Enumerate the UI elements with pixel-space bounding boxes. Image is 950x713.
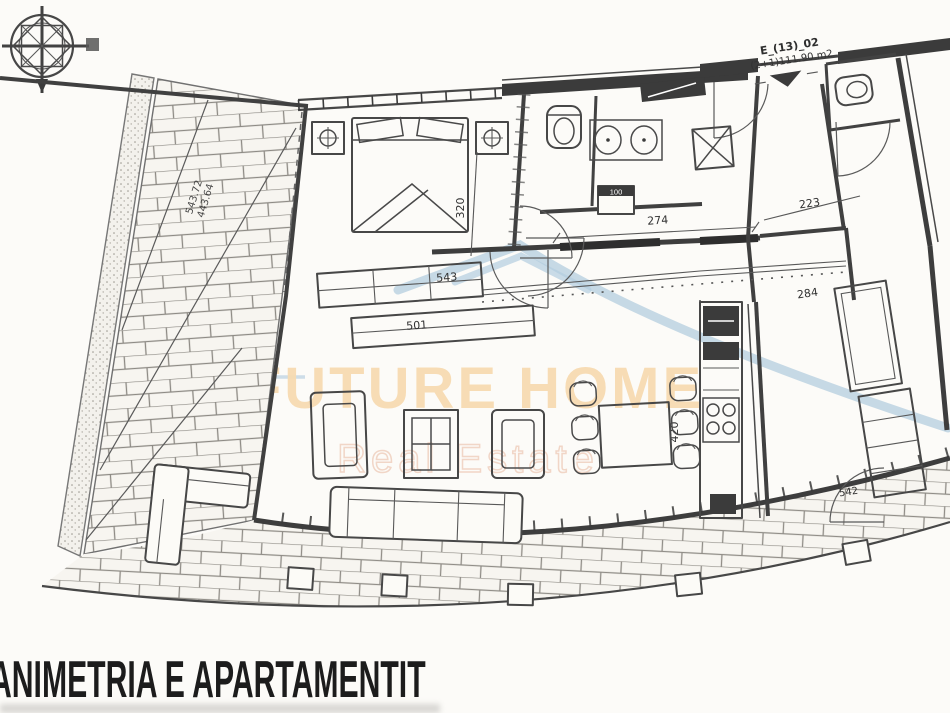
scan-artifact (0, 704, 440, 713)
toilet-icon (547, 106, 581, 148)
double-bed (352, 118, 468, 232)
wardrobe-501 (351, 305, 535, 348)
sofa-long (329, 487, 523, 544)
dim-wardrobe-top: 543 (436, 270, 458, 284)
washing-machine: 100 (598, 186, 634, 214)
tall-wardrobe-upper (834, 281, 902, 392)
dim-wardrobe-mid: 501 (406, 318, 428, 332)
double-sink (590, 120, 662, 160)
washer-label: 100 (610, 188, 623, 197)
floor-plan-drawing: 543.72 443.64 (0, 6, 950, 606)
dim-corridor: 274 (647, 213, 669, 227)
unit-label: E_(13)_02 (2+1)111.90 m2 (747, 34, 836, 92)
entry-hall: 223 284 (692, 74, 873, 302)
sink-unit (710, 494, 736, 514)
bedroom: 320 (312, 118, 508, 256)
hob-icon (703, 398, 739, 442)
dim-bedroom-window: 320 (454, 198, 467, 219)
hall-wardrobe (692, 126, 733, 169)
plan-title: ANIMETRIA E APARTAMENTIT (0, 650, 426, 710)
watermark-tagline-text: Real Estate (337, 437, 599, 481)
oven (703, 342, 739, 360)
scanned-floor-plan-page: FUTURE HOME Real Estate 543.72 (0, 0, 950, 713)
north-wall (298, 38, 950, 110)
watermark-brand-text: FUTURE HOME (246, 356, 704, 421)
dim-entry-hall: 223 (798, 196, 821, 212)
bathroom: 100 (547, 77, 706, 214)
coffee-table (404, 410, 458, 478)
floor-plan-canvas: FUTURE HOME Real Estate 543.72 (0, 0, 950, 650)
wc-toilet-icon (834, 74, 874, 107)
nightstand-right (476, 122, 508, 154)
dim-hall-right: 284 (796, 286, 819, 302)
nightstand-left (312, 122, 344, 154)
